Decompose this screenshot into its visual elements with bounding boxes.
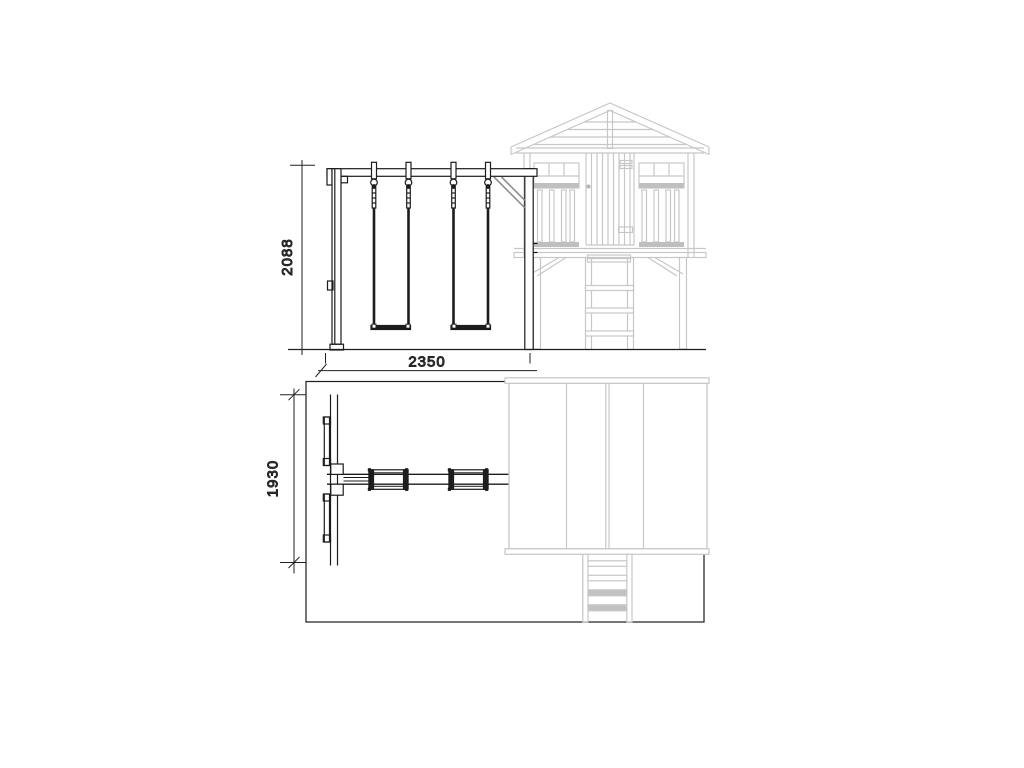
- dimension-depth: 1930: [265, 389, 307, 574]
- dimension-depth-label: 1930: [265, 460, 282, 497]
- hanger: [450, 162, 457, 325]
- front-elevation-view: 2088 2350: [279, 103, 709, 377]
- playhouse-elevation: [511, 103, 709, 350]
- technical-drawing: 2088 2350: [0, 0, 1024, 768]
- swing-seats-elevation: [371, 324, 491, 329]
- swing-beam: [327, 169, 537, 177]
- corner-brace: [494, 177, 525, 208]
- swing-right-post: [525, 169, 533, 350]
- hanger: [485, 162, 492, 325]
- dimension-height: 2088: [279, 160, 315, 355]
- ladder-elevation: [586, 255, 634, 350]
- right-window: [639, 163, 684, 247]
- hanger: [405, 162, 412, 325]
- ladder-plan: [583, 554, 632, 622]
- playhouse-door: [586, 153, 634, 245]
- swing-frame-plan: [323, 395, 510, 566]
- swing-seat-plan: [368, 468, 408, 491]
- platform-floor: [514, 249, 706, 258]
- hanger: [371, 162, 378, 325]
- left-window: [534, 163, 579, 247]
- aframe-planks-plan: [323, 417, 330, 542]
- dimension-width: 2350: [316, 353, 538, 377]
- playhouse-roof: [511, 103, 709, 155]
- plan-dimensions: 1930: [265, 389, 307, 574]
- swing-left-post: [328, 169, 344, 350]
- dimension-height-label: 2088: [279, 238, 296, 275]
- door-knob: [587, 185, 591, 189]
- drawing-canvas: 2088 2350: [0, 0, 1024, 768]
- swing-seat-plan: [448, 468, 488, 491]
- gable-siding: [516, 122, 704, 153]
- swing-hangers: [371, 162, 492, 325]
- dimension-width-label: 2350: [408, 354, 445, 371]
- plan-view: 1930: [265, 378, 710, 622]
- playhouse-roof-plan: [505, 378, 709, 555]
